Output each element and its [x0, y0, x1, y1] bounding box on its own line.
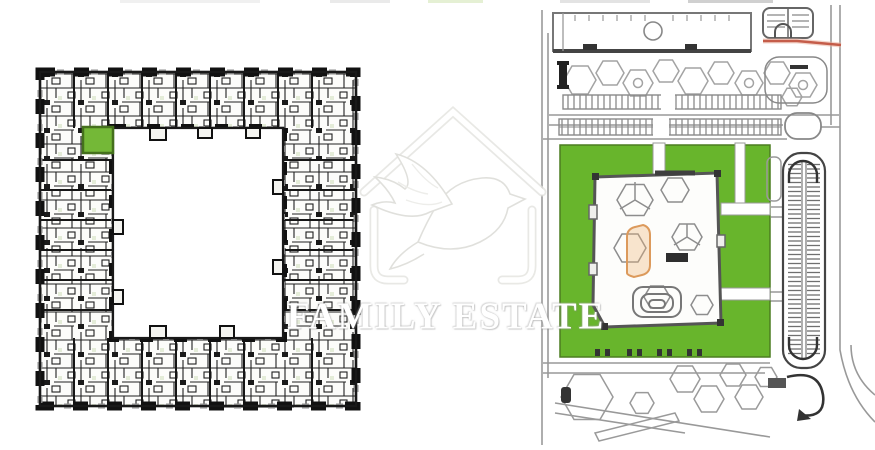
listing-image: FAMILY ESTATE: [0, 0, 875, 450]
site-plan-figure: [535, 5, 875, 445]
floor-plan-figure: [30, 60, 370, 415]
turnaround-loop: [785, 113, 821, 139]
turn-arrow: [768, 375, 823, 421]
crop-artifact: [428, 0, 483, 3]
courtyard: [113, 128, 283, 338]
northeast-structure: [763, 8, 813, 38]
dark-block: [666, 253, 688, 262]
parking-row-2: [559, 117, 781, 137]
crop-artifact: [560, 0, 650, 3]
dark-marker: [561, 387, 571, 403]
parking-strip: [767, 153, 825, 368]
orange-highlighted-building[interactable]: [627, 225, 650, 277]
central-building-courtyard: [589, 170, 725, 330]
crop-artifact: [120, 0, 260, 3]
highlighted-unit[interactable]: [83, 127, 113, 153]
red-route-line: [763, 41, 841, 45]
crop-artifact: [688, 0, 773, 3]
dove-house-logo-icon: [346, 90, 561, 305]
landscape-hexes-bottom: [561, 364, 777, 441]
crop-artifact: [330, 0, 390, 3]
dove: [372, 154, 525, 269]
north-building: [553, 13, 751, 51]
parking-row-1: [563, 93, 781, 111]
